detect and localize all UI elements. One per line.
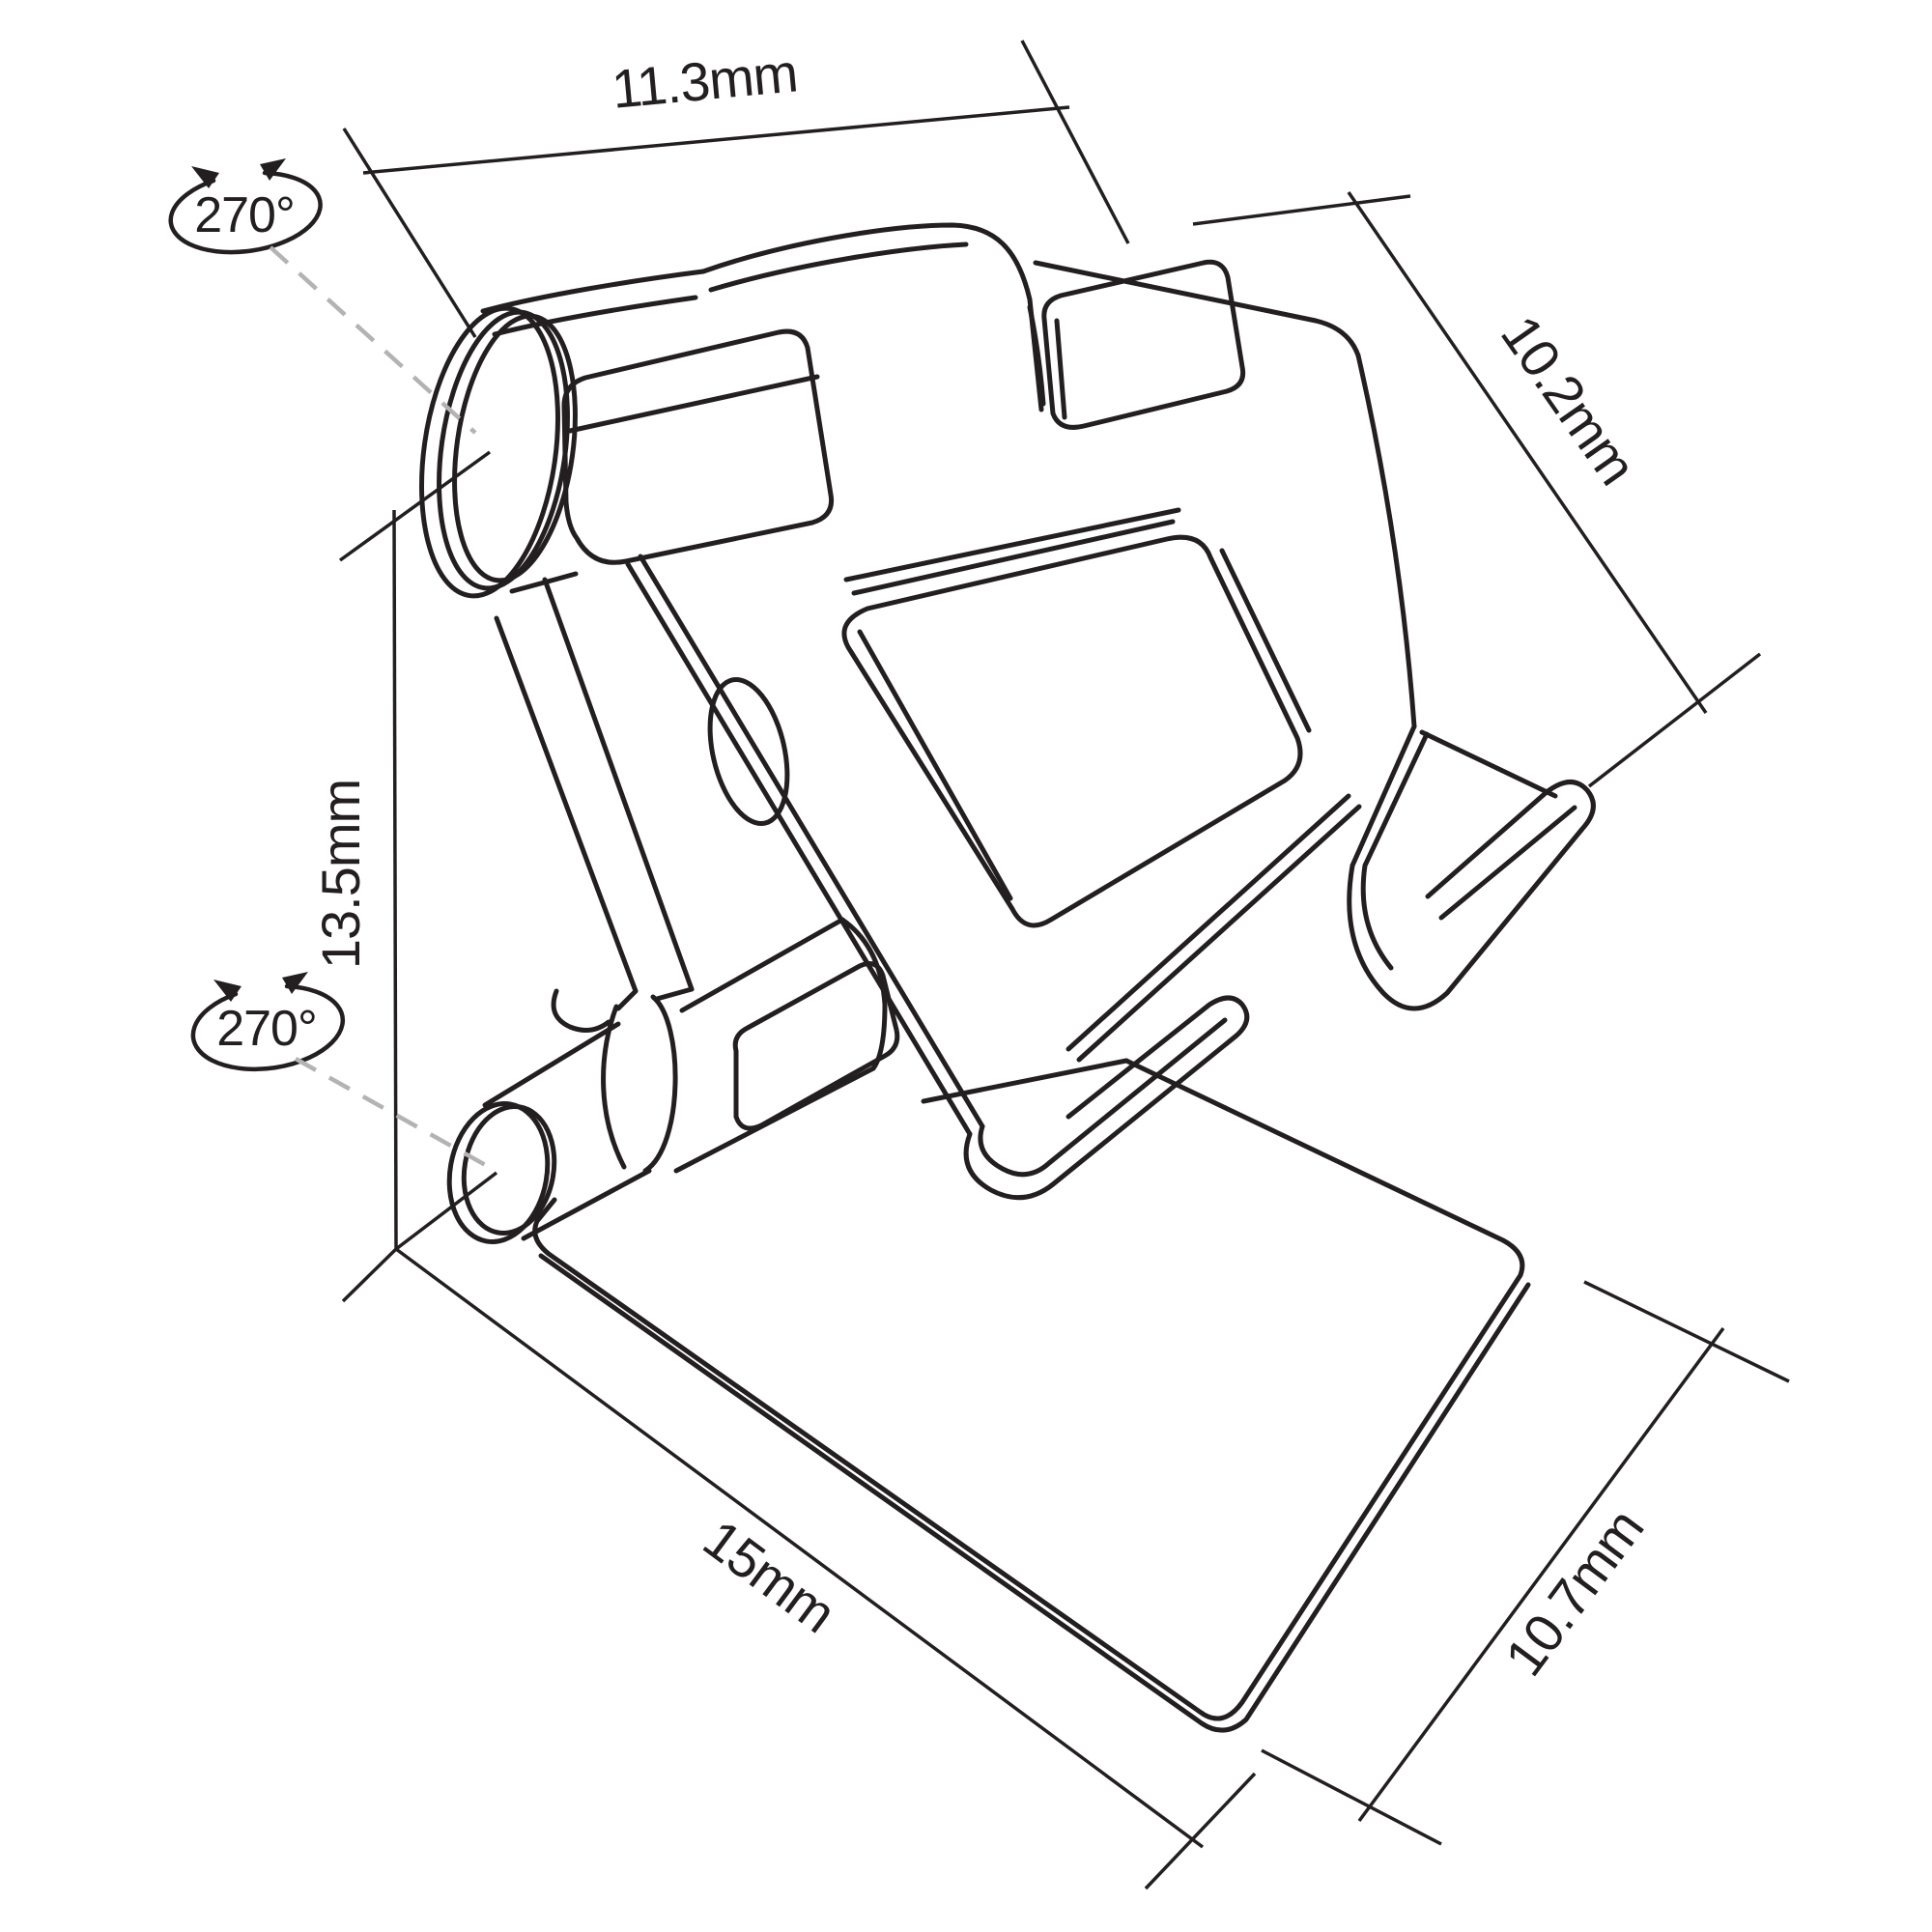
dimension-label-base-depth: 10.7mm xyxy=(1493,1498,1656,1687)
rotation-arrowhead-right xyxy=(260,158,286,181)
lip-back-edge xyxy=(1422,732,1555,796)
extension-line xyxy=(1146,1774,1255,1889)
rotation-label-bottom: 270° xyxy=(216,1001,317,1057)
stand-drawing xyxy=(405,225,1594,1730)
plate-left-wrap-tab xyxy=(564,331,832,562)
cutout-rim-right xyxy=(1222,551,1309,730)
leg-foot-fold xyxy=(618,991,636,1009)
base-bracket-tab xyxy=(735,964,897,1128)
cylinder-right-end xyxy=(842,920,885,1068)
dimension-label-top-width: 11.3mm xyxy=(610,42,800,119)
dimension-label-height: 13.5mm xyxy=(310,780,371,969)
extension-line xyxy=(1584,1282,1789,1381)
lip-fold-edge xyxy=(1352,726,1414,866)
rotation-indicator-top-hinge: 270° xyxy=(171,158,475,433)
base-outline xyxy=(535,1061,1522,1719)
leg-left-edge xyxy=(497,618,636,991)
cylinder-top-edge xyxy=(485,1024,618,1105)
leg-collar-right xyxy=(645,997,675,1171)
plate-left-edge-outer xyxy=(628,564,970,1134)
extension-line xyxy=(1262,1750,1441,1844)
plate-right-edge xyxy=(1358,355,1414,726)
hinge-axis-leader-dashed xyxy=(270,247,475,433)
dimension-line xyxy=(394,510,396,1249)
lip-inner-contour xyxy=(980,1020,1225,1175)
right-phone-lip xyxy=(1350,726,1594,1009)
extension-line xyxy=(344,128,475,337)
dimension-top-width: 11.3mm xyxy=(344,41,1128,337)
rotation-label-top: 270° xyxy=(194,187,295,243)
plate-left-edge-inner xyxy=(640,556,982,1126)
plate-slot xyxy=(697,672,800,832)
dimension-base-length: 15mm xyxy=(396,1249,1255,1889)
extension-line xyxy=(1589,654,1760,786)
kickstand-knuckle-contour xyxy=(711,244,966,290)
cutout-rim-line xyxy=(854,522,1173,593)
leg-right-edge xyxy=(545,580,692,989)
cylinder-top-edge xyxy=(483,271,703,311)
rotation-indicator-bottom-hinge: 270° xyxy=(193,972,489,1167)
diagram-stage: 11.3mm 10.2mm 13.5mm 15mm 10.7mm xyxy=(0,0,1932,1932)
rotation-arrowhead-right xyxy=(282,972,308,994)
cylinder-gap-sliver xyxy=(1030,307,1043,404)
plate-far-edge xyxy=(1036,263,1358,355)
base-plate xyxy=(535,1061,1528,1730)
dimension-label-base-length: 15mm xyxy=(693,1508,846,1644)
rotation-indicators: 270° 270° xyxy=(171,158,489,1167)
plate-bottom-edge-outer xyxy=(1068,796,1349,1049)
dimension-line xyxy=(1359,1328,1723,1821)
top-hinge-cap-rib xyxy=(423,303,584,596)
cutout-window xyxy=(844,537,1300,925)
small-hook xyxy=(554,991,609,1031)
bottom-hinge-cylinder xyxy=(439,920,897,1250)
leg-foot-fold xyxy=(657,989,692,999)
dimension-line xyxy=(1349,192,1706,713)
dimension-line xyxy=(396,1249,1203,1847)
plate-left-wrap-tab-crease xyxy=(570,377,817,431)
extension-line xyxy=(1022,41,1128,243)
extension-line xyxy=(340,452,490,560)
dimension-base-depth: 10.7mm xyxy=(1262,1282,1789,1844)
plate-right-wrap-tab-edge xyxy=(1057,321,1065,417)
extension-line xyxy=(1193,196,1410,224)
dimension-label-upper-depth: 10.2mm xyxy=(1490,304,1648,495)
hinge-axis-leader-dashed xyxy=(296,1059,489,1167)
cutout-rim-line xyxy=(846,510,1179,580)
corner-stub xyxy=(343,1249,396,1301)
cutout-wall-line xyxy=(860,632,1010,898)
dimension-line xyxy=(363,107,1069,173)
stand-technical-drawing: 11.3mm 10.2mm 13.5mm 15mm 10.7mm xyxy=(0,0,1932,1932)
cylinder-right-top xyxy=(682,920,842,1010)
